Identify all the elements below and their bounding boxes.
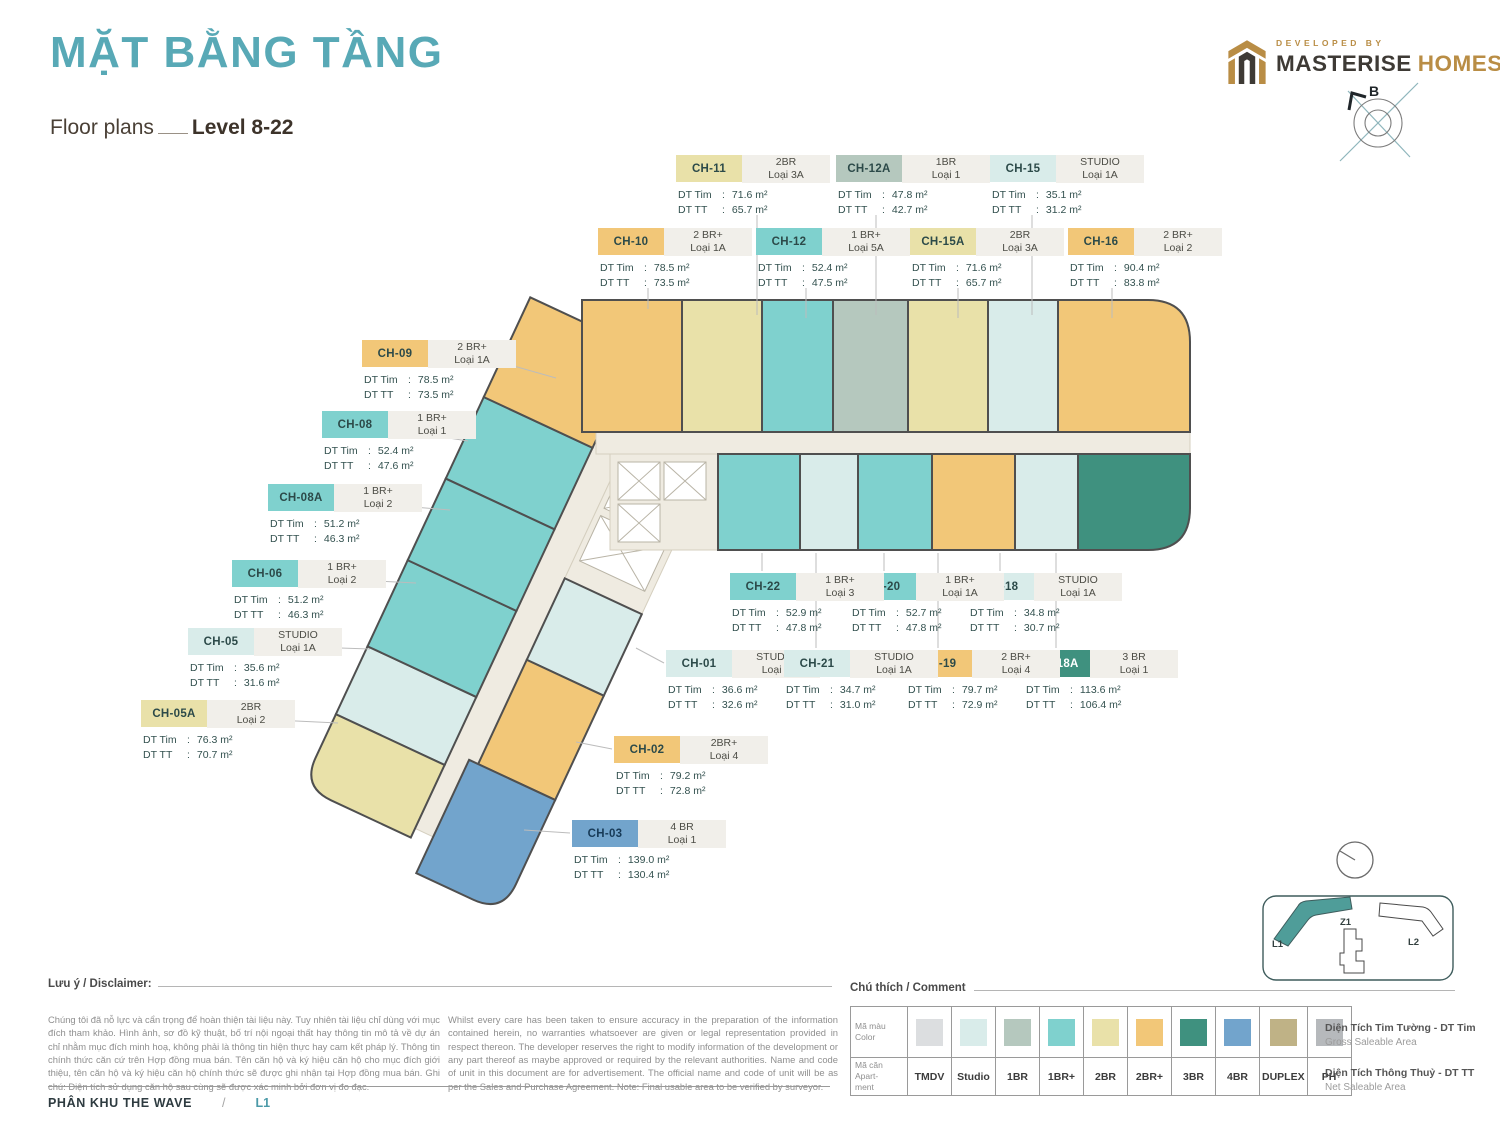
legend-swatch-TMDV bbox=[916, 1019, 943, 1046]
unit-areas: DT Tim:35.6 m²DT TT:31.6 m² bbox=[188, 656, 342, 693]
unit-type-box: 2BRLoại 3A bbox=[976, 228, 1064, 256]
unit-dt-tt: 32.6 m² bbox=[722, 699, 758, 711]
unit-type-box: 1 BR+Loại 2 bbox=[334, 484, 422, 512]
legend-swatch-cell-1BR+ bbox=[1040, 1007, 1084, 1058]
unit-loai: Loại 2 bbox=[1142, 242, 1214, 255]
unit-label-CH-02: CH-022BR+Loại 4DT Tim:79.2 m²DT TT:72.8 … bbox=[614, 736, 768, 800]
unit-dt-tim: 79.2 m² bbox=[670, 770, 706, 782]
unit-type: 2 BR+ bbox=[436, 341, 508, 354]
unit-type: 1 BR+ bbox=[924, 574, 996, 587]
unit-type-box: 1 BR+Loại 5A bbox=[822, 228, 910, 256]
unit-loai: Loại 1A bbox=[858, 664, 930, 677]
legend-swatch-1BR+ bbox=[1048, 1019, 1075, 1046]
unit-areas: DT Tim:52.4 m²DT TT:47.5 m² bbox=[756, 256, 910, 293]
unit-code-chip: CH-02 bbox=[614, 736, 680, 763]
unit-dt-tt: 31.2 m² bbox=[1046, 204, 1082, 216]
unit-dt-tt: 106.4 m² bbox=[1080, 699, 1121, 711]
unit-dt-tim: 139.0 m² bbox=[628, 854, 669, 866]
unit-dt-tt: 130.4 m² bbox=[628, 869, 669, 881]
unit-areas: DT Tim:51.2 m²DT TT:46.3 m² bbox=[268, 512, 422, 549]
unit-label-CH-03: CH-034 BRLoại 1DT Tim:139.0 m²DT TT:130.… bbox=[572, 820, 726, 884]
unit-dt-tim: 52.9 m² bbox=[786, 607, 822, 619]
unit-type-box: 3 BRLoại 1 bbox=[1090, 650, 1178, 678]
legend-swatch-cell-3BR bbox=[1172, 1007, 1216, 1058]
unit-dt-tt: 83.8 m² bbox=[1124, 277, 1160, 289]
unit-dt-tim: 34.8 m² bbox=[1024, 607, 1060, 619]
area-def-gross: Diện Tích Tim Tường - DT Tim Gross Salea… bbox=[1325, 1022, 1476, 1048]
unit-loai: Loại 1 bbox=[910, 169, 982, 182]
plan-unit-CH-22 bbox=[718, 454, 800, 550]
unit-type: STUDIO bbox=[1042, 574, 1114, 587]
unit-areas: DT Tim:52.4 m²DT TT:47.6 m² bbox=[322, 439, 476, 476]
disclaimer-text-en: Whilst every care has been taken to ensu… bbox=[448, 1013, 838, 1093]
unit-type: 1 BR+ bbox=[306, 561, 378, 574]
floor-plan-page: MẶT BẰNG TẦNG Floor plans Level 8-22 DEV… bbox=[0, 0, 1500, 1125]
unit-dt-tt: 47.8 m² bbox=[786, 622, 822, 634]
minimap-label-l1: L1 bbox=[1272, 939, 1284, 950]
unit-type-box: STUDIOLoại 1A bbox=[850, 650, 938, 678]
unit-label-CH-15A: CH-15A2BRLoại 3ADT Tim:71.6 m²DT TT:65.7… bbox=[910, 228, 1064, 292]
legend-swatch-4BR bbox=[1224, 1019, 1251, 1046]
minimap-label-l2: L2 bbox=[1408, 937, 1419, 948]
unit-code-chip: CH-01 bbox=[666, 650, 732, 677]
plan-unit-CH-15 bbox=[988, 300, 1058, 432]
legend-code-1BR: 1BR bbox=[996, 1058, 1040, 1096]
unit-type: 3 BR bbox=[1098, 651, 1170, 664]
unit-dt-tim: 52.4 m² bbox=[378, 445, 414, 457]
legend-code-2BR: 2BR bbox=[1084, 1058, 1128, 1096]
unit-type: 4 BR bbox=[646, 821, 718, 834]
unit-type: STUDIO bbox=[1064, 156, 1136, 169]
unit-dt-tt: 31.0 m² bbox=[840, 699, 876, 711]
unit-type-box: STUDIOLoại 1A bbox=[254, 628, 342, 656]
plan-unit-CH-18 bbox=[1015, 454, 1078, 550]
unit-dt-tim: 51.2 m² bbox=[288, 594, 324, 606]
unit-loai: Loại 1A bbox=[924, 587, 996, 600]
unit-code-chip: CH-11 bbox=[676, 155, 742, 182]
unit-loai: Loại 1 bbox=[1098, 664, 1170, 677]
unit-areas: DT Tim:78.5 m²DT TT:73.5 m² bbox=[598, 256, 752, 293]
unit-code-chip: CH-05A bbox=[141, 700, 207, 727]
unit-label-CH-10: CH-102 BR+Loại 1ADT Tim:78.5 m²DT TT:73.… bbox=[598, 228, 752, 292]
unit-areas: DT Tim:79.2 m²DT TT:72.8 m² bbox=[614, 764, 768, 801]
unit-loai: Loại 3A bbox=[984, 242, 1056, 255]
legend-table: Mã màu Color Mã căn Apart- ment TMDVStud… bbox=[850, 1006, 1352, 1096]
plan-unit-CH-12 bbox=[762, 300, 833, 432]
unit-dt-tt: 70.7 m² bbox=[197, 749, 233, 761]
unit-code-chip: CH-15A bbox=[910, 228, 976, 255]
unit-loai: Loại 2 bbox=[306, 574, 378, 587]
unit-code-chip: CH-22 bbox=[730, 573, 796, 600]
legend-swatch-cell-1BR bbox=[996, 1007, 1040, 1058]
site-minimap: L1 Z1 L2 bbox=[1260, 833, 1465, 993]
unit-dt-tt: 73.5 m² bbox=[418, 389, 454, 401]
footer-zone-name: PHÂN KHU THE WAVE bbox=[48, 1096, 192, 1110]
disclaimer-heading: Lưu ý / Disclaimer: bbox=[48, 978, 832, 990]
unit-code-chip: CH-05 bbox=[188, 628, 254, 655]
unit-dt-tim: 34.7 m² bbox=[840, 684, 876, 696]
unit-dt-tim: 52.4 m² bbox=[812, 262, 848, 274]
footer-slash: / bbox=[222, 1096, 225, 1110]
unit-dt-tim: 79.7 m² bbox=[962, 684, 998, 696]
unit-type: 1BR bbox=[910, 156, 982, 169]
legend-swatch-cell-2BR+ bbox=[1128, 1007, 1172, 1058]
unit-type: STUDIO bbox=[262, 629, 334, 642]
legend-swatch-cell-4BR bbox=[1216, 1007, 1260, 1058]
unit-dt-tim: 52.7 m² bbox=[906, 607, 942, 619]
footer: PHÂN KHU THE WAVE / L1 bbox=[48, 1096, 270, 1110]
unit-dt-tt: 46.3 m² bbox=[288, 609, 324, 621]
unit-dt-tt: 65.7 m² bbox=[966, 277, 1002, 289]
unit-label-CH-12: CH-121 BR+Loại 5ADT Tim:52.4 m²DT TT:47.… bbox=[756, 228, 910, 292]
unit-type: 2 BR+ bbox=[980, 651, 1052, 664]
unit-loai: Loại 1 bbox=[646, 834, 718, 847]
unit-areas: DT Tim:52.9 m²DT TT:47.8 m² bbox=[730, 601, 884, 638]
unit-dt-tt: 46.3 m² bbox=[324, 533, 360, 545]
unit-areas: DT Tim:71.6 m²DT TT:65.7 m² bbox=[676, 183, 830, 220]
unit-type-box: 1BRLoại 1 bbox=[902, 155, 990, 183]
leader-CH-01 bbox=[636, 648, 664, 663]
legend-swatch-3BR bbox=[1180, 1019, 1207, 1046]
unit-dt-tt: 73.5 m² bbox=[654, 277, 690, 289]
unit-areas: DT Tim:71.6 m²DT TT:65.7 m² bbox=[910, 256, 1064, 293]
unit-dt-tt: 72.8 m² bbox=[670, 785, 706, 797]
unit-label-CH-16: CH-162 BR+Loại 2DT Tim:90.4 m²DT TT:83.8… bbox=[1068, 228, 1222, 292]
unit-type: 2BR bbox=[750, 156, 822, 169]
unit-dt-tim: 71.6 m² bbox=[732, 189, 768, 201]
plan-unit-CH-21 bbox=[800, 454, 858, 550]
unit-loai: Loại 3A bbox=[750, 169, 822, 182]
unit-type: 2 BR+ bbox=[1142, 229, 1214, 242]
legend-code-4BR: 4BR bbox=[1216, 1058, 1260, 1096]
unit-label-CH-12A: CH-12A1BRLoại 1DT Tim:47.8 m²DT TT:42.7 … bbox=[836, 155, 990, 219]
unit-label-CH-15: CH-15STUDIOLoại 1ADT Tim:35.1 m²DT TT:31… bbox=[990, 155, 1144, 219]
legend-code-row-label: Mã căn Apart- ment bbox=[851, 1058, 908, 1096]
plan-unit-CH-16 bbox=[1058, 300, 1190, 432]
unit-type: 1 BR+ bbox=[830, 229, 902, 242]
unit-label-CH-11: CH-112BRLoại 3ADT Tim:71.6 m²DT TT:65.7 … bbox=[676, 155, 830, 219]
unit-type: 1 BR+ bbox=[342, 485, 414, 498]
legend-swatch-cell-2BR bbox=[1084, 1007, 1128, 1058]
unit-label-CH-06: CH-061 BR+Loại 2DT Tim:51.2 m²DT TT:46.3… bbox=[232, 560, 386, 624]
legend-heading: Chú thích / Comment bbox=[850, 982, 1455, 994]
unit-dt-tim: 36.6 m² bbox=[722, 684, 758, 696]
unit-type-box: 2 BR+Loại 2 bbox=[1134, 228, 1222, 256]
legend-swatch-cell-TMDV bbox=[908, 1007, 952, 1058]
unit-dt-tt: 47.5 m² bbox=[812, 277, 848, 289]
footer-divider-line bbox=[48, 1086, 830, 1087]
unit-label-CH-21: CH-21STUDIOLoại 1ADT Tim:34.7 m²DT TT:31… bbox=[784, 650, 938, 714]
unit-dt-tim: 78.5 m² bbox=[654, 262, 690, 274]
unit-type: 2BR+ bbox=[688, 737, 760, 750]
unit-areas: DT Tim:76.3 m²DT TT:70.7 m² bbox=[141, 728, 295, 765]
unit-loai: Loại 4 bbox=[980, 664, 1052, 677]
unit-areas: DT Tim:139.0 m²DT TT:130.4 m² bbox=[572, 848, 726, 885]
unit-type-box: 1 BR+Loại 3 bbox=[796, 573, 884, 601]
unit-dt-tim: 51.2 m² bbox=[324, 518, 360, 530]
plan-unit-CH-12A bbox=[833, 300, 908, 432]
unit-label-CH-08: CH-081 BR+Loại 1DT Tim:52.4 m²DT TT:47.6… bbox=[322, 411, 476, 475]
unit-areas: DT Tim:51.2 m²DT TT:46.3 m² bbox=[232, 588, 386, 625]
legend-swatch-1BR bbox=[1004, 1019, 1031, 1046]
legend-swatch-cell-Studio bbox=[952, 1007, 996, 1058]
unit-loai: Loại 1A bbox=[672, 242, 744, 255]
plan-unit-CH-18A bbox=[1078, 454, 1190, 550]
unit-code-chip: CH-12 bbox=[756, 228, 822, 255]
unit-dt-tt: 30.7 m² bbox=[1024, 622, 1060, 634]
unit-dt-tt: 47.6 m² bbox=[378, 460, 414, 472]
unit-loai: Loại 3 bbox=[804, 587, 876, 600]
plan-unit-CH-20 bbox=[858, 454, 932, 550]
area-definitions: Diện Tích Tim Tường - DT Tim Gross Salea… bbox=[1325, 1022, 1476, 1112]
unit-loai: Loại 1A bbox=[1064, 169, 1136, 182]
unit-code-chip: CH-12A bbox=[836, 155, 902, 182]
unit-dt-tim: 47.8 m² bbox=[892, 189, 928, 201]
unit-type: 2BR bbox=[984, 229, 1056, 242]
legend-code-Studio: Studio bbox=[952, 1058, 996, 1096]
unit-code-chip: CH-21 bbox=[784, 650, 850, 677]
plan-unit-CH-15A bbox=[908, 300, 988, 432]
unit-code-chip: CH-15 bbox=[990, 155, 1056, 182]
plan-unit-CH-10 bbox=[582, 300, 682, 432]
unit-type-box: 2 BR+Loại 4 bbox=[972, 650, 1060, 678]
unit-loai: Loại 2 bbox=[215, 714, 287, 727]
unit-type-box: 4 BRLoại 1 bbox=[638, 820, 726, 848]
unit-code-chip: CH-08A bbox=[268, 484, 334, 511]
unit-dt-tt: 31.6 m² bbox=[244, 677, 280, 689]
unit-areas: DT Tim:35.1 m²DT TT:31.2 m² bbox=[990, 183, 1144, 220]
unit-dt-tim: 113.6 m² bbox=[1080, 684, 1121, 696]
unit-dt-tim: 35.1 m² bbox=[1046, 189, 1082, 201]
unit-code-chip: CH-03 bbox=[572, 820, 638, 847]
unit-type: 2 BR+ bbox=[672, 229, 744, 242]
unit-dt-tt: 72.9 m² bbox=[962, 699, 998, 711]
unit-type-box: 1 BR+Loại 1 bbox=[388, 411, 476, 439]
unit-code-chip: CH-10 bbox=[598, 228, 664, 255]
legend-color-row-label: Mã màu Color bbox=[851, 1007, 908, 1058]
unit-dt-tim: 71.6 m² bbox=[966, 262, 1002, 274]
legend-code-DUPLEX: DUPLEX bbox=[1260, 1058, 1308, 1096]
area-def-net: Diện Tích Thông Thuỷ - DT TT Net Saleabl… bbox=[1325, 1067, 1476, 1093]
unit-loai: Loại 4 bbox=[688, 750, 760, 763]
unit-loai: Loại 2 bbox=[342, 498, 414, 511]
unit-type: 2BR bbox=[215, 701, 287, 714]
unit-label-CH-05A: CH-05A2BRLoại 2DT Tim:76.3 m²DT TT:70.7 … bbox=[141, 700, 295, 764]
unit-areas: DT Tim:90.4 m²DT TT:83.8 m² bbox=[1068, 256, 1222, 293]
legend-code-1BR+: 1BR+ bbox=[1040, 1058, 1084, 1096]
unit-code-chip: CH-06 bbox=[232, 560, 298, 587]
unit-type-box: STUDIOLoại 1A bbox=[1034, 573, 1122, 601]
unit-dt-tim: 78.5 m² bbox=[418, 374, 454, 386]
unit-type: 1 BR+ bbox=[396, 412, 468, 425]
unit-areas: DT Tim:34.7 m²DT TT:31.0 m² bbox=[784, 678, 938, 715]
unit-label-CH-09: CH-092 BR+Loại 1ADT Tim:78.5 m²DT TT:73.… bbox=[362, 340, 516, 404]
legend-code-TMDV: TMDV bbox=[908, 1058, 952, 1096]
legend-swatch-Studio bbox=[960, 1019, 987, 1046]
unit-areas: DT Tim:47.8 m²DT TT:42.7 m² bbox=[836, 183, 990, 220]
unit-dt-tt: 42.7 m² bbox=[892, 204, 928, 216]
unit-label-CH-05: CH-05STUDIOLoại 1ADT Tim:35.6 m²DT TT:31… bbox=[188, 628, 342, 692]
unit-dt-tim: 76.3 m² bbox=[197, 734, 233, 746]
unit-type-box: 2 BR+Loại 1A bbox=[428, 340, 516, 368]
unit-type-box: 2BR+Loại 4 bbox=[680, 736, 768, 764]
footer-tower-name: L1 bbox=[256, 1096, 271, 1110]
unit-type-box: 1 BR+Loại 1A bbox=[916, 573, 1004, 601]
unit-loai: Loại 1 bbox=[396, 425, 468, 438]
plan-unit-CH-11 bbox=[682, 300, 762, 432]
plan-unit-CH-19 bbox=[932, 454, 1015, 550]
unit-dt-tim: 90.4 m² bbox=[1124, 262, 1160, 274]
legend-swatch-2BR bbox=[1092, 1019, 1119, 1046]
minimap-label-z1: Z1 bbox=[1340, 917, 1352, 928]
unit-type-box: 2BRLoại 3A bbox=[742, 155, 830, 183]
unit-loai: Loại 5A bbox=[830, 242, 902, 255]
unit-areas: DT Tim:78.5 m²DT TT:73.5 m² bbox=[362, 368, 516, 405]
legend-code-2BR+: 2BR+ bbox=[1128, 1058, 1172, 1096]
unit-loai: Loại 1A bbox=[1042, 587, 1114, 600]
unit-type: STUDIO bbox=[858, 651, 930, 664]
legend-swatch-cell-DUPLEX bbox=[1260, 1007, 1308, 1058]
legend-swatch-DUPLEX bbox=[1270, 1019, 1297, 1046]
unit-code-chip: CH-09 bbox=[362, 340, 428, 367]
unit-type: 1 BR+ bbox=[804, 574, 876, 587]
unit-loai: Loại 1A bbox=[436, 354, 508, 367]
unit-loai: Loại 1A bbox=[262, 642, 334, 655]
disclaimer-text-vi: Chúng tôi đã nỗ lực và cẩn trọng để hoàn… bbox=[48, 1013, 440, 1093]
legend-code-3BR: 3BR bbox=[1172, 1058, 1216, 1096]
unit-label-CH-22: CH-221 BR+Loại 3DT Tim:52.9 m²DT TT:47.8… bbox=[730, 573, 884, 637]
unit-label-CH-08A: CH-08A1 BR+Loại 2DT Tim:51.2 m²DT TT:46.… bbox=[268, 484, 422, 548]
unit-type-box: 2 BR+Loại 1A bbox=[664, 228, 752, 256]
unit-dt-tim: 35.6 m² bbox=[244, 662, 280, 674]
unit-code-chip: CH-08 bbox=[322, 411, 388, 438]
unit-code-chip: CH-16 bbox=[1068, 228, 1134, 255]
unit-type-box: STUDIOLoại 1A bbox=[1056, 155, 1144, 183]
unit-type-box: 1 BR+Loại 2 bbox=[298, 560, 386, 588]
unit-dt-tt: 65.7 m² bbox=[732, 204, 768, 216]
legend-swatch-2BR+ bbox=[1136, 1019, 1163, 1046]
unit-dt-tt: 47.8 m² bbox=[906, 622, 942, 634]
unit-type-box: 2BRLoại 2 bbox=[207, 700, 295, 728]
